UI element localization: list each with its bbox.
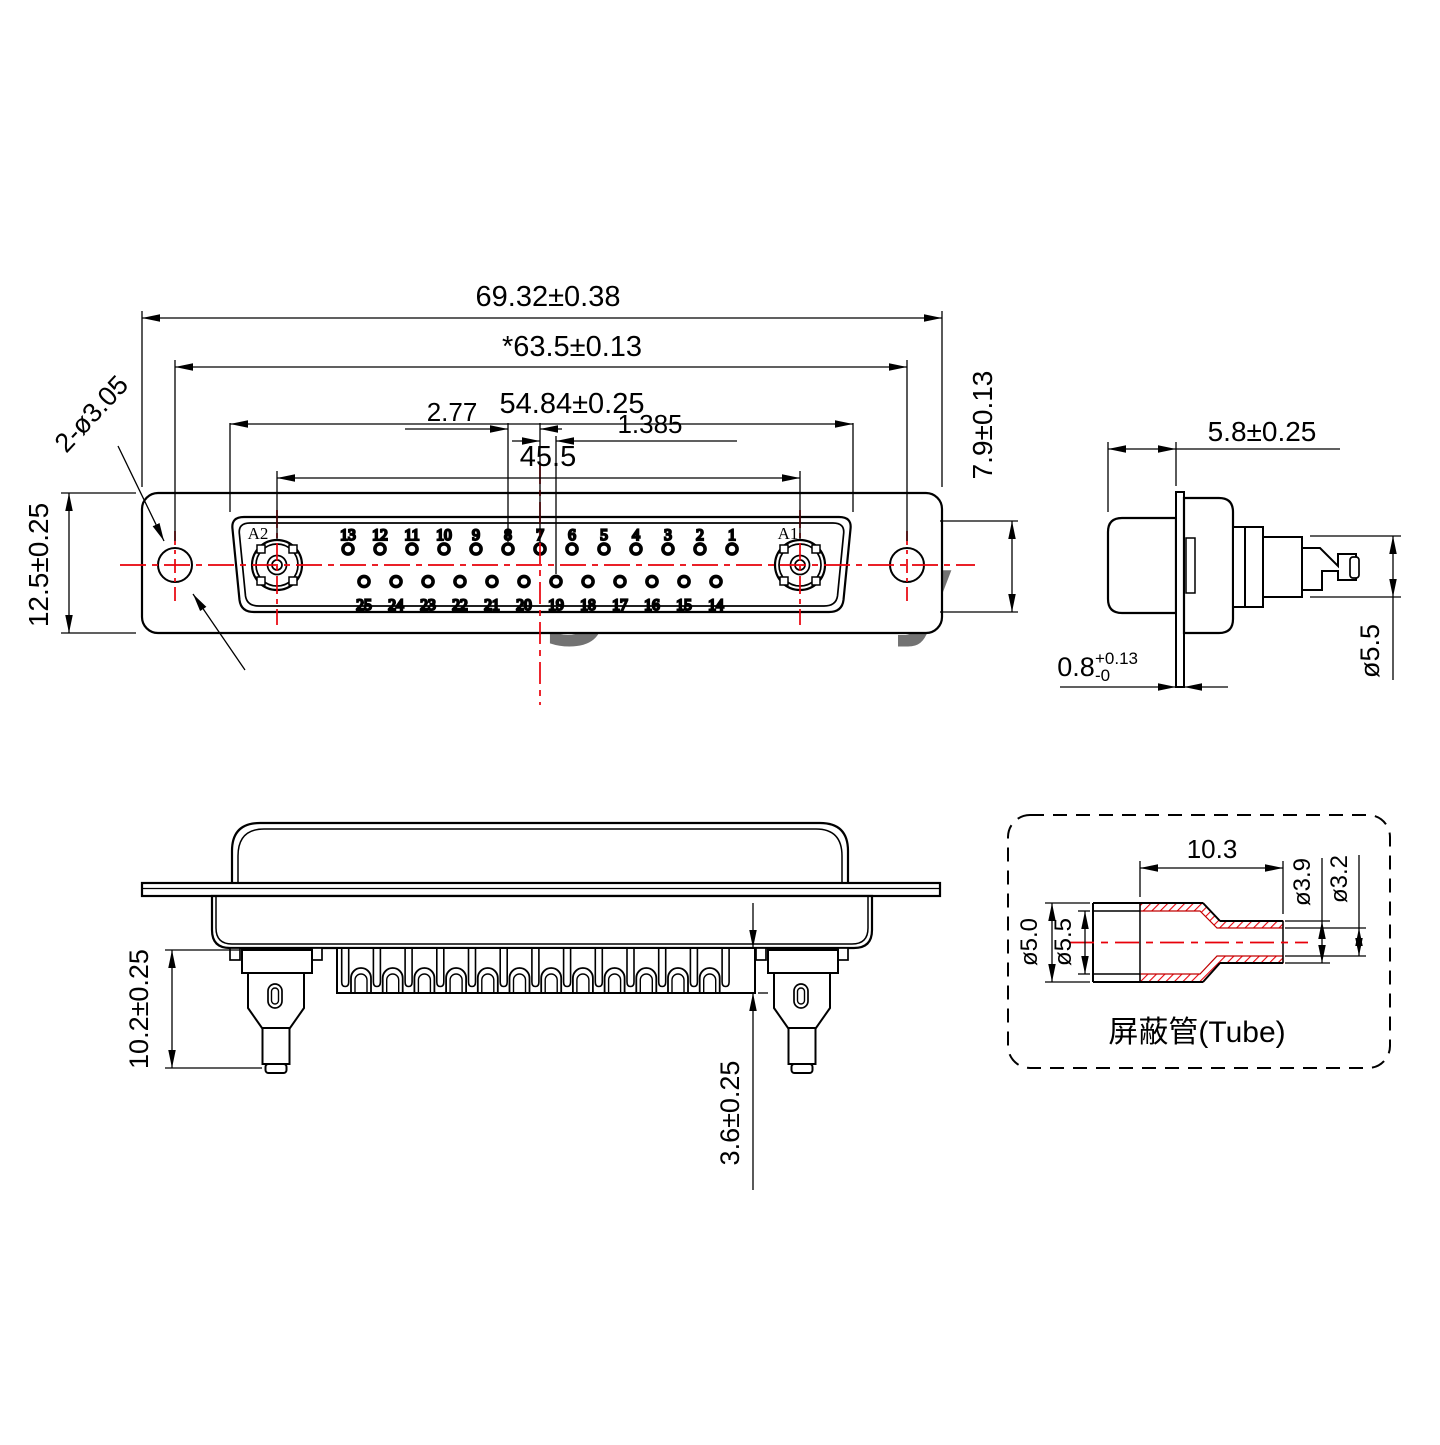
pin-hole (375, 544, 385, 554)
pin-hole (551, 576, 561, 586)
pin-label: 12 (372, 527, 388, 544)
pin-hole (615, 576, 625, 586)
pin-label: 6 (568, 527, 576, 544)
pin-label: 13 (340, 527, 356, 544)
rear-view (142, 823, 940, 1073)
technical-drawing-page: Lightany Lightany (0, 0, 1440, 1440)
pin-label: 3 (664, 527, 672, 544)
pin-label: 11 (405, 527, 420, 544)
dim-tube-length: 10.3 (1187, 834, 1238, 864)
pin-hole (503, 544, 513, 554)
tube-label: 屏蔽管(Tube) (1108, 1016, 1285, 1049)
pin-hole (727, 544, 737, 554)
pin-hole (439, 544, 449, 554)
tube-wall-top (1140, 903, 1283, 928)
tube-wall-bottom (1140, 956, 1283, 982)
connector-drawing: Lightany Lightany (0, 0, 1440, 1440)
pin-hole (455, 576, 465, 586)
pin-label: 5 (600, 527, 608, 544)
coax-tail (242, 950, 312, 1073)
dim-height: 12.5±0.25 (23, 503, 54, 627)
pin-label: 14 (708, 597, 724, 614)
side-shell-front (1108, 518, 1176, 613)
coax-tail (768, 950, 838, 1073)
rear-mount-plate (142, 883, 940, 896)
pin-hole (391, 576, 401, 586)
label-a2: A2 (248, 524, 269, 543)
pin-label: 4 (632, 527, 640, 544)
pin-hole (647, 576, 657, 586)
pin-label: 19 (548, 597, 564, 614)
pin-label: 17 (612, 597, 628, 614)
dim-contact-dia: ø5.5 (1355, 624, 1385, 678)
dim-dia-outer-large: ø5.5 (1050, 918, 1077, 966)
dim-pin-tail: 3.6±0.25 (715, 1061, 745, 1166)
pin-label: 20 (516, 597, 532, 614)
pin-label: 2 (696, 527, 704, 544)
dim-pitch: 2.77 (427, 397, 478, 427)
pin-hole (695, 544, 705, 554)
pin-hole (663, 544, 673, 554)
side-view (1108, 492, 1359, 687)
pin-hole (343, 544, 353, 554)
side-flange (1176, 492, 1184, 687)
pin-hole (519, 576, 529, 586)
side-contact-pin (1302, 548, 1356, 590)
dim-dia-inner-small: ø3.2 (1326, 855, 1353, 903)
dim-flange-tol-lower: -0 (1095, 666, 1110, 685)
side-body-step-detail (1186, 538, 1195, 593)
pin-hole (631, 544, 641, 554)
dim-mount-hole: 2-ø3.05 (49, 370, 134, 459)
pin-hole (567, 544, 577, 554)
rear-tab (838, 948, 848, 960)
pin-hole (599, 544, 609, 554)
side-step (1233, 527, 1245, 607)
rear-tab (312, 948, 322, 960)
pin-label: 18 (580, 597, 596, 614)
dim-insert-height: 7.9±0.13 (967, 371, 998, 480)
front-view: 1312111098765432125242322212019181716151… (142, 493, 942, 633)
pin-hole (679, 576, 689, 586)
tube-detail: 10.3 ø3.9 ø3.2 ø5.0 ø5.5 屏蔽管(Tube) (1008, 815, 1390, 1068)
pin-label: 24 (388, 597, 404, 614)
dim-overall-width: 69.32±0.38 (476, 281, 621, 313)
rear-tab (756, 948, 766, 960)
pin-label: 23 (420, 597, 436, 614)
dim-coax-tail: 10.2±0.25 (124, 949, 154, 1069)
pin-label: 22 (452, 597, 468, 614)
pin-label: 15 (676, 597, 692, 614)
pin-label: 16 (644, 597, 660, 614)
rear-dome-outer (232, 823, 848, 885)
pin-label: 1 (728, 527, 736, 544)
label-a1: A1 (778, 524, 799, 543)
pin-hole (711, 576, 721, 586)
dim-half-pitch: 1.385 (617, 409, 682, 439)
pin-hole (423, 576, 433, 586)
dim-flange-thickness: 0.8 (1057, 652, 1095, 682)
pin-hole (407, 544, 417, 554)
dim-dia-outer-small: ø3.9 (1289, 858, 1316, 906)
pin-label: 9 (472, 527, 480, 544)
dim-dia-inner-large: ø5.0 (1016, 918, 1043, 966)
side-contact-sleeve (1263, 537, 1302, 597)
pin-hole (471, 544, 481, 554)
pin-hole (487, 576, 497, 586)
pin-label: 25 (356, 597, 372, 614)
pin-label: 10 (436, 527, 452, 544)
pin-hole (583, 576, 593, 586)
side-contact-barrel (1245, 527, 1263, 607)
side-contact-tip (1350, 557, 1359, 578)
pin-label: 21 (484, 597, 500, 614)
dim-coax-spacing: 45.5 (520, 441, 576, 473)
pin-hole (359, 576, 369, 586)
rear-skirt (212, 896, 872, 948)
dim-shell-depth: 5.8±0.25 (1208, 416, 1317, 447)
dim-mount-spacing: *63.5±0.13 (502, 331, 642, 363)
